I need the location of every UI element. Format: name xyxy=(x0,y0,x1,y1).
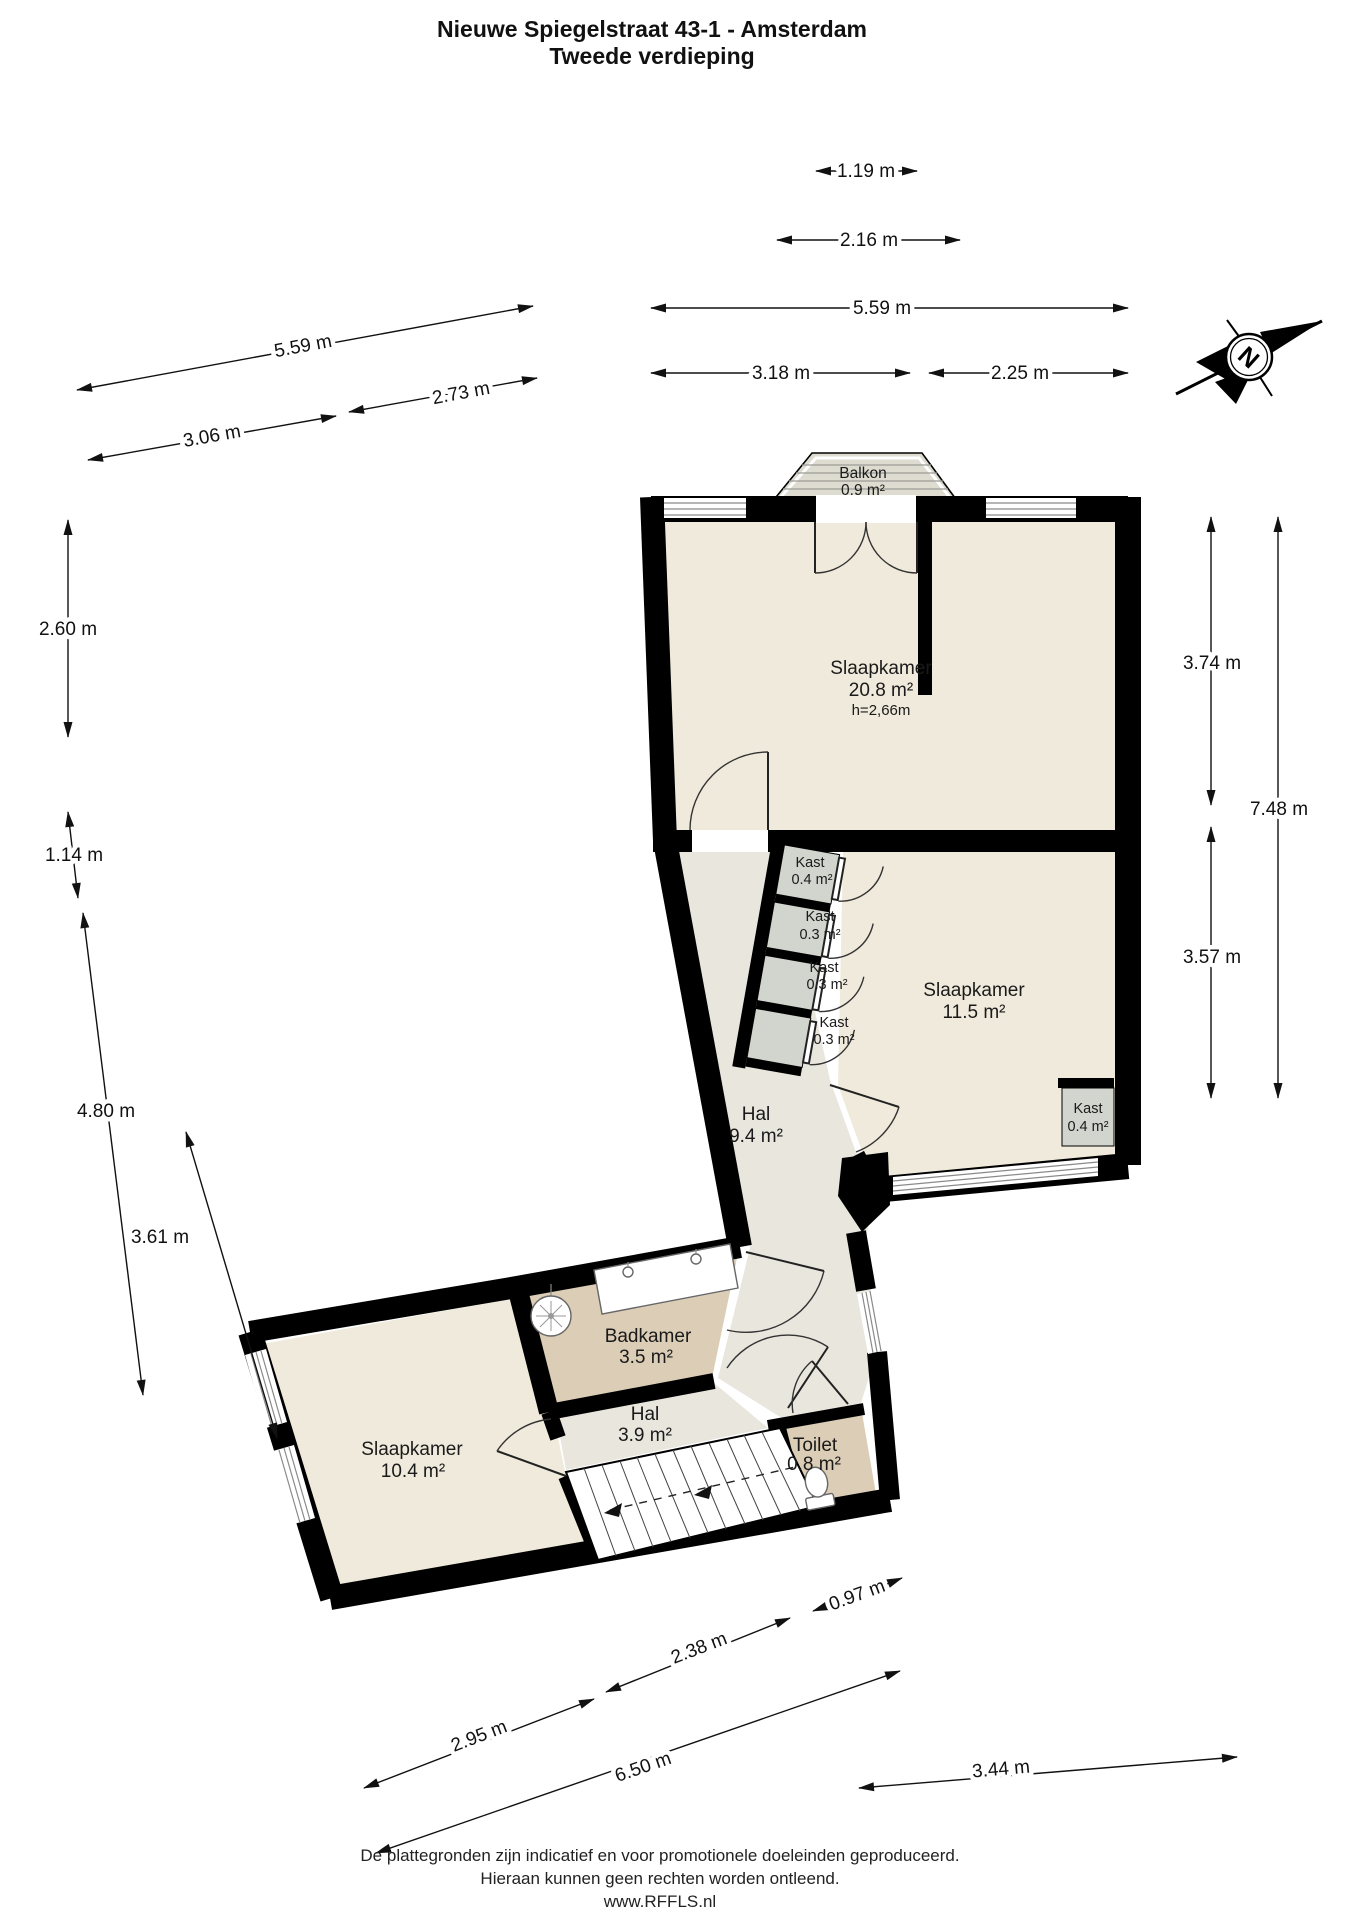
page-title: Nieuwe Spiegelstraat 43-1 - Amsterdam Tw… xyxy=(0,16,1304,70)
dim-3-57: 3.57 m xyxy=(1183,947,1241,968)
compass-icon: N xyxy=(1176,320,1322,404)
dim-7-48: 7.48 m xyxy=(1250,799,1308,820)
disclaimer: De plattegronden zijn indicatief en voor… xyxy=(0,1844,1320,1913)
dim-3-61: 3.61 m xyxy=(131,1227,189,1248)
dim-0-97: 0.97 m xyxy=(826,1576,888,1616)
svg-text:0.8 m²: 0.8 m² xyxy=(787,1454,841,1475)
label-slaapkamer-11-5: Slaapkamer xyxy=(923,980,1025,1001)
svg-text:10.4 m²: 10.4 m² xyxy=(381,1461,445,1482)
svg-text:0.4 m²: 0.4 m² xyxy=(1067,1119,1108,1135)
svg-text:Kast: Kast xyxy=(819,1015,848,1031)
website-url: www.RFFLS.nl xyxy=(0,1890,1320,1913)
dim-2-16: 2.16 m xyxy=(840,230,898,251)
svg-text:Kast: Kast xyxy=(805,909,834,925)
dim-6-50: 6.50 m xyxy=(612,1748,674,1787)
window-top-left xyxy=(664,498,746,518)
dim-1-19: 1.19 m xyxy=(837,161,895,182)
disclaimer-line2: Hieraan kunnen geen rechten worden ontle… xyxy=(0,1867,1320,1890)
svg-text:Kast: Kast xyxy=(1073,1101,1102,1117)
svg-text:Kast: Kast xyxy=(809,960,838,976)
dim-5-59-top: 5.59 m xyxy=(853,298,911,319)
address-title: Nieuwe Spiegelstraat 43-1 - Amsterdam xyxy=(0,16,1304,43)
dim-3-06: 3.06 m xyxy=(182,421,243,452)
closet-bedroom2: Kast 0.4 m² xyxy=(1058,1078,1114,1146)
svg-text:Kast: Kast xyxy=(795,855,824,871)
floor-subtitle: Tweede verdieping xyxy=(0,43,1304,70)
balcony-name: Balkon xyxy=(839,465,886,482)
svg-text:11.5 m²: 11.5 m² xyxy=(942,1002,1005,1023)
dim-2-95: 2.95 m xyxy=(448,1716,510,1756)
dim-4-80: 4.80 m xyxy=(77,1101,135,1122)
dim-2-25: 2.25 m xyxy=(991,363,1049,384)
label-hal-9-4: Hal xyxy=(742,1104,771,1125)
svg-text:3.5 m²: 3.5 m² xyxy=(619,1347,673,1368)
dim-2-73: 2.73 m xyxy=(431,378,492,409)
window-top-right xyxy=(986,498,1076,518)
svg-text:0.3 m²: 0.3 m² xyxy=(806,977,847,993)
balcony: Balkon 0.9 m² xyxy=(772,453,958,502)
svg-text:3.9 m²: 3.9 m² xyxy=(618,1425,672,1446)
dim-3-18: 3.18 m xyxy=(752,363,810,384)
floorplan-page: Nieuwe Spiegelstraat 43-1 - Amsterdam Tw… xyxy=(0,0,1358,1920)
label-slaapkamer-10-4: Slaapkamer xyxy=(361,1439,463,1460)
svg-text:0.3 m²: 0.3 m² xyxy=(799,927,840,943)
svg-text:0.3 m²: 0.3 m² xyxy=(813,1032,854,1048)
label-toilet: Toilet xyxy=(793,1435,838,1456)
dim-3-74: 3.74 m xyxy=(1183,653,1241,674)
svg-text:h=2,66m: h=2,66m xyxy=(852,702,911,719)
label-hal-3-9: Hal xyxy=(631,1404,660,1425)
dim-3-44: 3.44 m xyxy=(971,1757,1031,1783)
room-floors xyxy=(262,522,1117,1594)
svg-text:9.4 m²: 9.4 m² xyxy=(729,1126,783,1147)
dim-2-38: 2.38 m xyxy=(668,1628,730,1668)
dim-2-60: 2.60 m xyxy=(39,619,97,640)
floorplan-drawing: Balkon 0.9 m² xyxy=(0,0,1358,1920)
svg-text:0.4 m²: 0.4 m² xyxy=(791,872,832,888)
dim-5-59-left: 5.59 m xyxy=(273,331,334,362)
svg-text:20.8 m²: 20.8 m² xyxy=(849,680,913,701)
dim-1-14: 1.14 m xyxy=(45,845,103,866)
disclaimer-line1: De plattegronden zijn indicatief en voor… xyxy=(0,1844,1320,1867)
label-slaapkamer-20-8: Slaapkamer xyxy=(830,658,932,679)
label-badkamer: Badkamer xyxy=(605,1326,692,1347)
